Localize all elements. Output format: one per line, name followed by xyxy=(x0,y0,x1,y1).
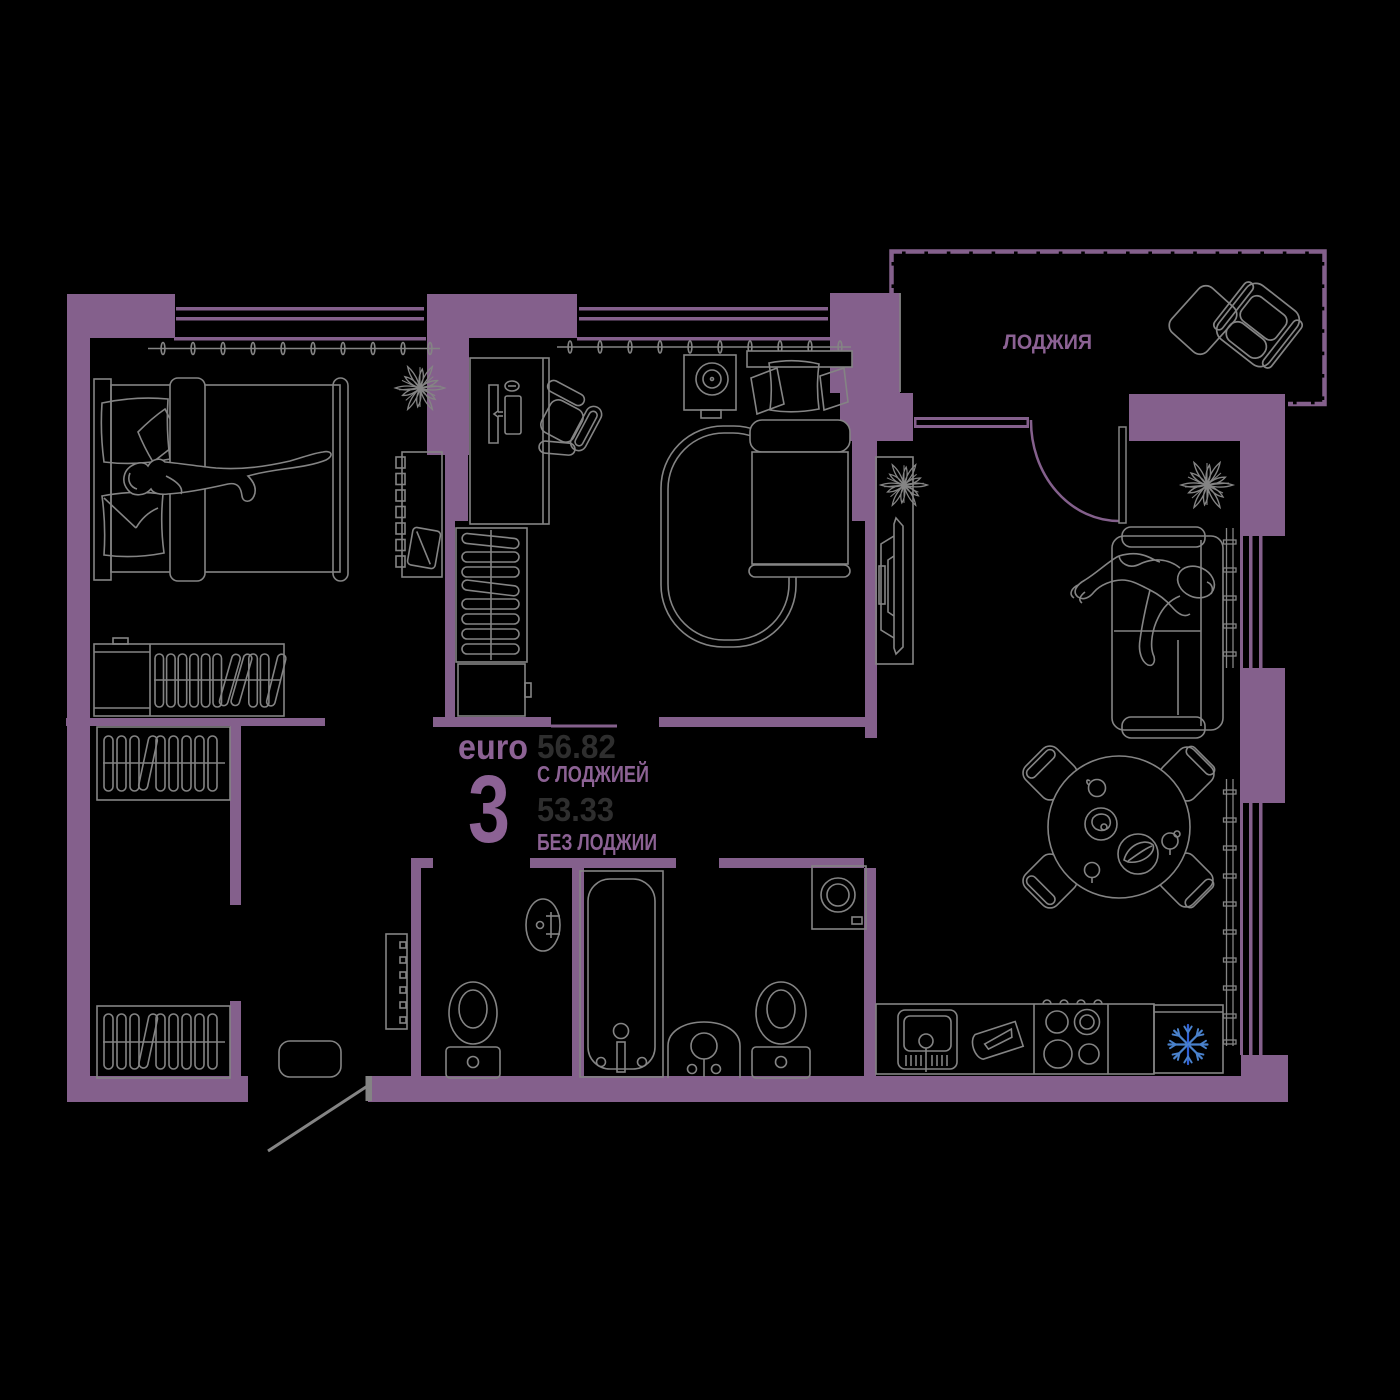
svg-text:С ЛОДЖИЕЙ: С ЛОДЖИЕЙ xyxy=(537,760,649,787)
svg-text:БЕЗ ЛОДЖИИ: БЕЗ ЛОДЖИИ xyxy=(537,829,657,855)
svg-text:3: 3 xyxy=(468,756,510,863)
svg-text:ЛОДЖИЯ: ЛОДЖИЯ xyxy=(1003,331,1092,354)
svg-text:53.33: 53.33 xyxy=(537,791,614,828)
svg-text:56.82: 56.82 xyxy=(537,728,616,765)
